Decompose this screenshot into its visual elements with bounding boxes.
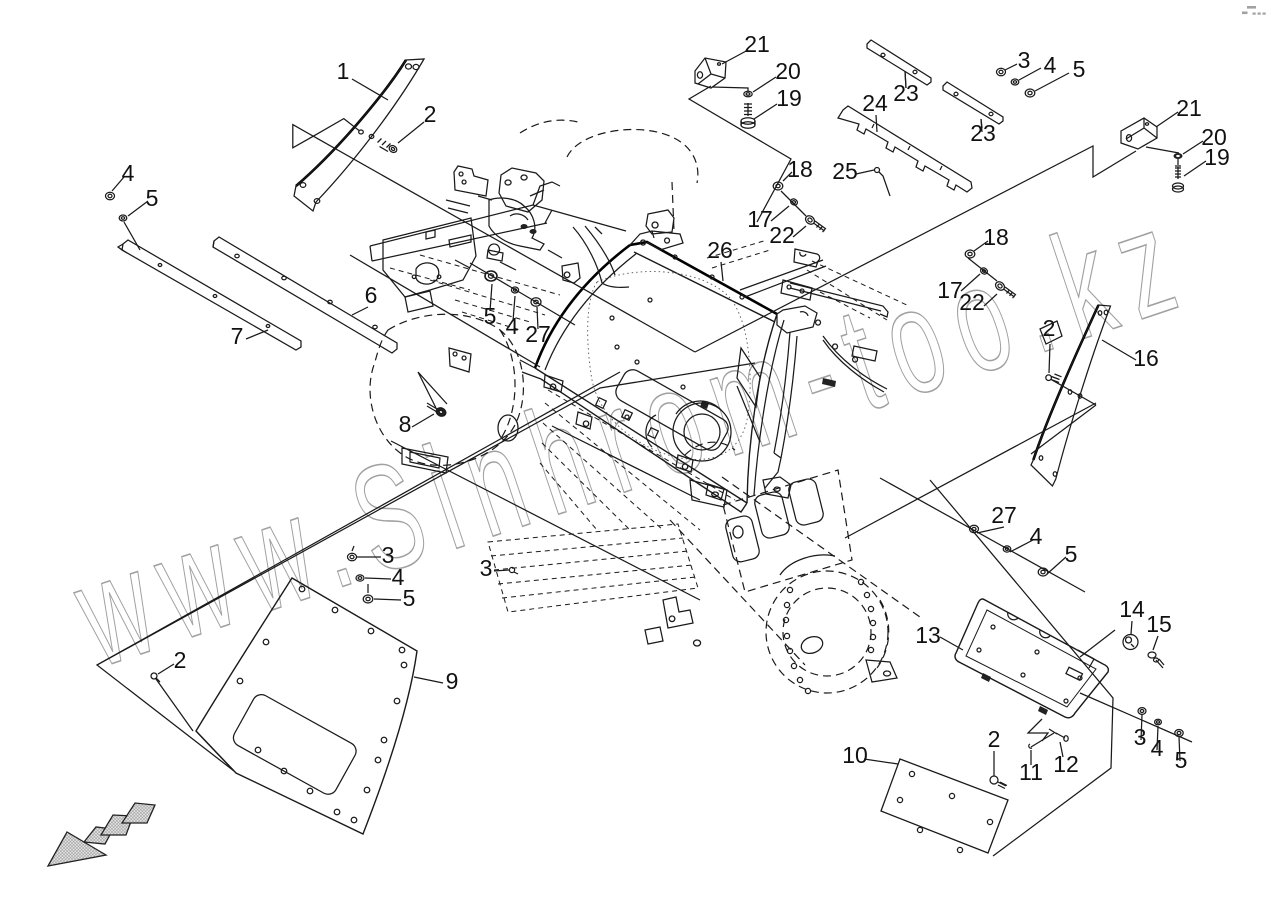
svg-text:10: 10: [842, 742, 868, 768]
svg-text:4: 4: [122, 160, 135, 186]
svg-text:21: 21: [1176, 95, 1202, 121]
svg-text:4: 4: [506, 313, 519, 339]
svg-text:5: 5: [403, 585, 416, 611]
svg-text:19: 19: [776, 85, 802, 111]
svg-text:20: 20: [775, 58, 801, 84]
svg-text:22: 22: [959, 289, 985, 315]
svg-text:23: 23: [970, 120, 996, 146]
svg-text:2: 2: [1043, 315, 1056, 341]
svg-text:7: 7: [231, 323, 244, 349]
svg-text:27: 27: [991, 502, 1017, 528]
svg-text:3: 3: [480, 555, 493, 581]
svg-text:4: 4: [1044, 52, 1057, 78]
svg-text:12: 12: [1053, 751, 1079, 777]
svg-text:19: 19: [1204, 144, 1230, 170]
svg-text:3: 3: [1134, 724, 1147, 750]
svg-text:8: 8: [399, 411, 412, 437]
svg-text:3: 3: [1018, 47, 1031, 73]
svg-text:26: 26: [707, 237, 733, 263]
svg-text:2: 2: [174, 647, 187, 673]
svg-text:18: 18: [787, 156, 813, 182]
svg-text:2: 2: [988, 726, 1001, 752]
svg-text:18: 18: [983, 224, 1009, 250]
svg-text:16: 16: [1133, 345, 1159, 371]
svg-text:9: 9: [446, 668, 459, 694]
svg-text:24: 24: [862, 90, 888, 116]
svg-text:5: 5: [1073, 56, 1086, 82]
svg-text:2: 2: [424, 101, 437, 127]
svg-text:22: 22: [769, 222, 795, 248]
svg-text:1: 1: [337, 58, 350, 84]
svg-text:5: 5: [1065, 541, 1078, 567]
svg-text:4: 4: [1030, 523, 1043, 549]
svg-text:5: 5: [1175, 747, 1188, 773]
svg-text:15: 15: [1146, 611, 1172, 637]
svg-text:14: 14: [1119, 596, 1145, 622]
svg-text:13: 13: [915, 622, 941, 648]
svg-text:21: 21: [744, 31, 770, 57]
svg-text:6: 6: [365, 282, 378, 308]
svg-text:25: 25: [832, 158, 858, 184]
svg-text:5: 5: [146, 185, 159, 211]
